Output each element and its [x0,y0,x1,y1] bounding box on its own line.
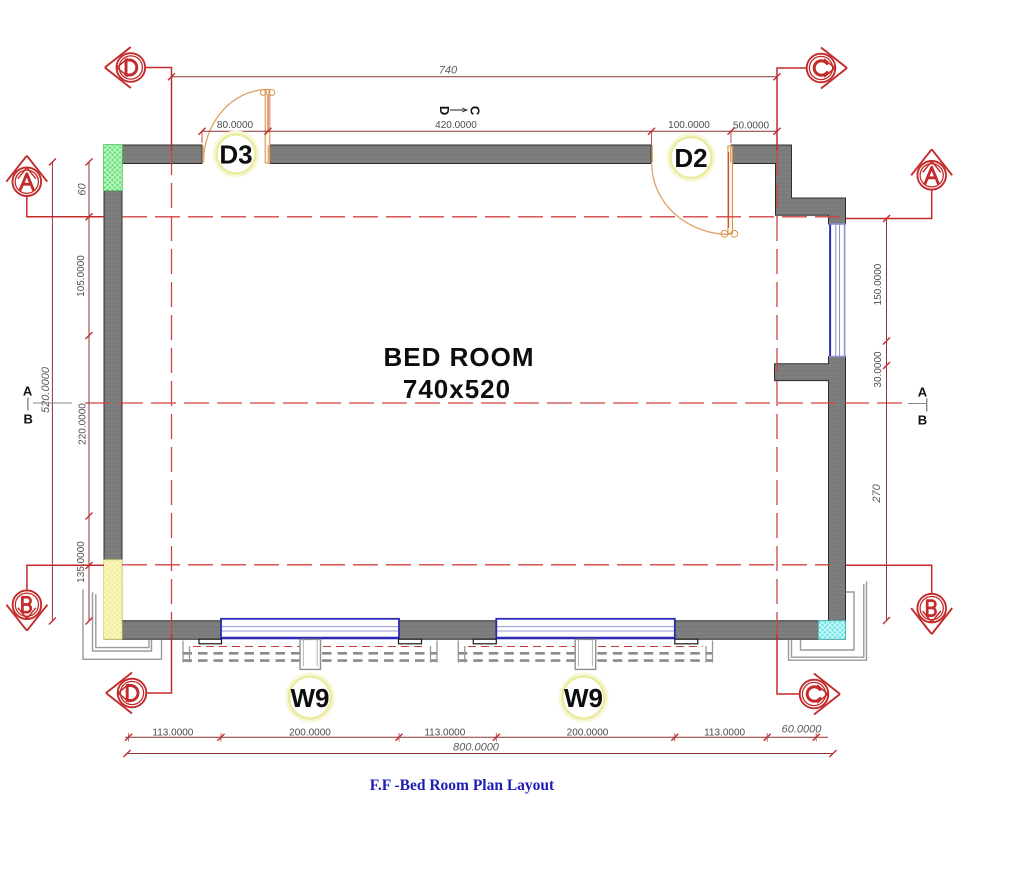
svg-text:740: 740 [439,65,458,77]
svg-text:520.0000: 520.0000 [40,366,52,413]
svg-text:D: D [437,106,452,115]
svg-text:D2: D2 [674,143,707,173]
svg-text:270: 270 [871,483,883,503]
svg-text:220.0000: 220.0000 [78,403,89,445]
svg-text:60.0000: 60.0000 [782,724,823,736]
svg-text:200.0000: 200.0000 [567,728,609,739]
svg-text:F.F -Bed Room Plan Layout: F.F -Bed Room Plan Layout [370,777,555,794]
svg-text:B: B [24,412,33,427]
svg-text:740x520: 740x520 [403,374,511,404]
svg-text:135.0000: 135.0000 [76,541,87,583]
svg-text:200.0000: 200.0000 [289,728,331,739]
svg-text:W9: W9 [564,683,603,713]
svg-text:80.0000: 80.0000 [217,120,254,131]
svg-text:30.0000: 30.0000 [873,351,884,388]
svg-text:60: 60 [77,183,89,196]
svg-text:C: C [468,106,483,116]
svg-text:BED ROOM: BED ROOM [384,342,535,372]
svg-text:50.0000: 50.0000 [733,121,770,132]
svg-text:B: B [918,413,927,428]
svg-text:W9: W9 [291,683,330,713]
svg-text:A: A [23,384,33,399]
svg-text:100.0000: 100.0000 [668,120,710,131]
svg-text:A: A [918,385,928,400]
svg-text:113.0000: 113.0000 [704,728,745,739]
svg-text:113.0000: 113.0000 [152,728,193,739]
svg-text:113.0000: 113.0000 [424,728,465,739]
svg-text:105.0000: 105.0000 [76,255,87,297]
svg-text:150.0000: 150.0000 [873,263,884,305]
svg-text:800.0000: 800.0000 [453,742,500,754]
svg-text:420.0000: 420.0000 [435,120,477,131]
svg-text:D3: D3 [219,140,252,170]
